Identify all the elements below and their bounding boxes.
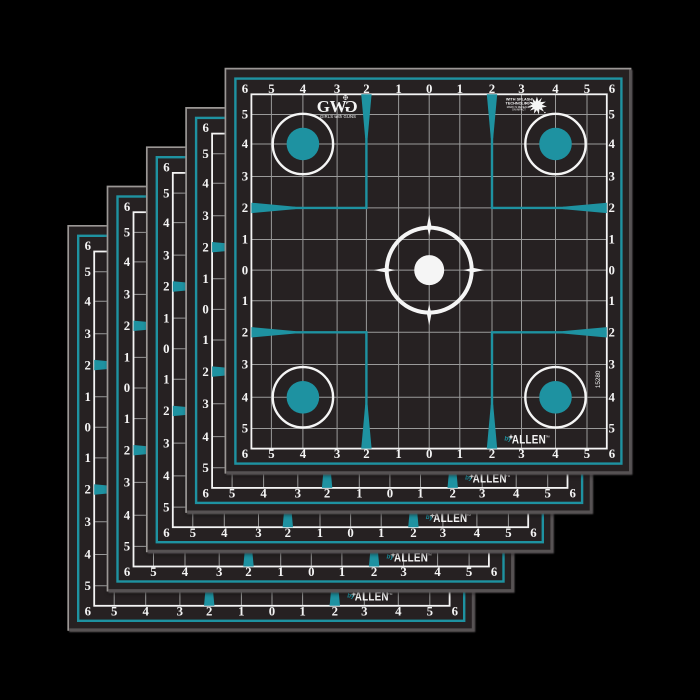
svg-text:3: 3 [124, 288, 130, 302]
svg-text:6: 6 [491, 565, 498, 579]
svg-text:5: 5 [608, 108, 614, 122]
svg-text:4: 4 [84, 548, 91, 562]
svg-text:0: 0 [163, 342, 169, 356]
svg-text:6: 6 [609, 447, 616, 461]
svg-text:5: 5 [427, 604, 433, 618]
svg-text:1: 1 [242, 233, 248, 247]
svg-text:1: 1 [457, 82, 463, 96]
svg-text:5: 5 [163, 500, 169, 514]
svg-text:6: 6 [242, 82, 249, 96]
svg-text:4: 4 [608, 137, 615, 151]
svg-text:2: 2 [163, 280, 169, 294]
svg-text:3: 3 [518, 447, 524, 461]
svg-text:0: 0 [347, 526, 353, 540]
svg-text:4: 4 [182, 565, 189, 579]
svg-text:5: 5 [111, 604, 117, 618]
svg-text:2: 2 [489, 447, 495, 461]
svg-text:0: 0 [387, 487, 393, 501]
svg-text:2: 2 [324, 487, 330, 501]
svg-text:6: 6 [242, 447, 249, 461]
svg-text:0: 0 [242, 263, 248, 277]
svg-text:1: 1 [356, 487, 362, 501]
svg-text:6: 6 [85, 239, 92, 253]
svg-text:5: 5 [505, 526, 511, 540]
svg-text:1: 1 [417, 487, 423, 501]
svg-text:2: 2 [84, 358, 90, 372]
svg-text:5: 5 [229, 487, 235, 501]
svg-text:2: 2 [163, 404, 169, 418]
svg-text:4: 4 [513, 487, 520, 501]
svg-text:3: 3 [163, 248, 169, 262]
svg-text:3: 3 [608, 170, 614, 184]
svg-text:2: 2 [242, 201, 248, 215]
svg-text:1: 1 [339, 565, 345, 579]
svg-text:0: 0 [269, 604, 275, 618]
svg-text:G: G [344, 97, 357, 116]
svg-text:4: 4 [202, 177, 209, 191]
svg-text:4: 4 [242, 391, 249, 405]
svg-text:GW: GW [317, 97, 347, 116]
svg-text:1: 1 [299, 604, 305, 618]
svg-text:3: 3 [295, 487, 301, 501]
svg-text:5: 5 [242, 108, 248, 122]
svg-text:4: 4 [300, 447, 307, 461]
svg-text:2: 2 [489, 82, 495, 96]
svg-text:TM: TM [545, 435, 550, 439]
svg-text:3: 3 [177, 604, 183, 618]
svg-text:4: 4 [84, 294, 91, 308]
svg-text:15280: 15280 [595, 370, 602, 388]
svg-text:1: 1 [395, 82, 401, 96]
svg-text:4: 4 [142, 604, 149, 618]
svg-text:5: 5 [584, 82, 590, 96]
svg-text:3: 3 [334, 447, 340, 461]
svg-text:5: 5 [190, 526, 196, 540]
svg-text:3: 3 [440, 526, 446, 540]
svg-text:1: 1 [124, 351, 130, 365]
svg-text:5: 5 [584, 447, 590, 461]
svg-text:0: 0 [426, 447, 432, 461]
svg-text:3: 3 [202, 209, 208, 223]
svg-text:2: 2 [206, 604, 212, 618]
svg-text:5: 5 [163, 186, 169, 200]
svg-text:TECHNOLOGY: TECHNOLOGY [506, 101, 533, 105]
svg-text:4: 4 [202, 430, 209, 444]
svg-text:1: 1 [163, 311, 169, 325]
svg-text:1: 1 [242, 294, 248, 308]
svg-text:3: 3 [242, 170, 248, 184]
svg-text:6: 6 [202, 121, 209, 135]
svg-text:2: 2 [285, 526, 291, 540]
svg-text:6: 6 [452, 604, 459, 618]
svg-text:1: 1 [238, 604, 244, 618]
svg-text:3: 3 [242, 358, 248, 372]
svg-text:1: 1 [395, 447, 401, 461]
svg-text:3: 3 [334, 82, 340, 96]
svg-text:1: 1 [378, 526, 384, 540]
svg-text:3: 3 [518, 82, 524, 96]
svg-text:2: 2 [608, 201, 614, 215]
svg-text:3: 3 [255, 526, 261, 540]
svg-text:5: 5 [608, 422, 614, 436]
svg-text:1: 1 [202, 272, 208, 286]
svg-text:2: 2 [202, 365, 208, 379]
svg-text:2: 2 [363, 82, 369, 96]
svg-text:4: 4 [434, 565, 441, 579]
svg-text:5: 5 [84, 265, 90, 279]
svg-text:2: 2 [202, 240, 208, 254]
svg-text:4: 4 [124, 255, 131, 269]
svg-text:1: 1 [457, 447, 463, 461]
svg-text:3: 3 [216, 565, 222, 579]
svg-text:0: 0 [426, 82, 432, 96]
svg-text:4: 4 [300, 82, 307, 96]
svg-text:4: 4 [552, 82, 559, 96]
svg-text:3: 3 [479, 487, 485, 501]
svg-text:1: 1 [608, 233, 614, 247]
svg-text:2: 2 [449, 487, 455, 501]
svg-text:5: 5 [466, 565, 472, 579]
svg-text:4: 4 [608, 391, 615, 405]
svg-text:0: 0 [308, 565, 314, 579]
svg-text:3: 3 [163, 436, 169, 450]
svg-text:1: 1 [277, 565, 283, 579]
svg-text:5: 5 [84, 579, 90, 593]
svg-text:1: 1 [84, 390, 90, 404]
svg-text:6: 6 [85, 604, 92, 618]
svg-text:3: 3 [202, 397, 208, 411]
svg-text:6: 6 [163, 161, 170, 175]
svg-text:6: 6 [124, 200, 131, 214]
svg-text:0: 0 [608, 263, 614, 277]
svg-text:5: 5 [268, 447, 274, 461]
svg-text:4: 4 [395, 604, 402, 618]
svg-text:GIRLS with GUNS: GIRLS with GUNS [320, 114, 356, 119]
svg-text:1: 1 [163, 373, 169, 387]
svg-text:2: 2 [332, 604, 338, 618]
svg-text:6: 6 [609, 82, 616, 96]
svg-text:2: 2 [124, 319, 130, 333]
svg-text:2: 2 [245, 565, 251, 579]
svg-text:1: 1 [124, 412, 130, 426]
svg-text:0: 0 [202, 303, 208, 317]
svg-text:4: 4 [124, 508, 131, 522]
svg-text:2: 2 [363, 447, 369, 461]
svg-text:2: 2 [84, 483, 90, 497]
svg-text:0: 0 [124, 381, 130, 395]
svg-text:ON IMPACT: ON IMPACT [512, 109, 526, 112]
svg-text:2: 2 [410, 526, 416, 540]
svg-text:2: 2 [371, 565, 377, 579]
svg-text:3: 3 [84, 515, 90, 529]
svg-text:3: 3 [84, 327, 90, 341]
svg-text:4: 4 [163, 216, 170, 230]
svg-text:5: 5 [124, 226, 130, 240]
svg-text:1: 1 [317, 526, 323, 540]
svg-text:3: 3 [608, 358, 614, 372]
svg-text:4: 4 [163, 469, 170, 483]
svg-text:5: 5 [124, 540, 130, 554]
svg-text:5: 5 [202, 147, 208, 161]
svg-text:1: 1 [608, 294, 614, 308]
svg-text:3: 3 [400, 565, 406, 579]
svg-text:6: 6 [124, 565, 131, 579]
svg-text:5: 5 [150, 565, 156, 579]
svg-text:0: 0 [84, 421, 90, 435]
svg-text:5: 5 [202, 461, 208, 475]
svg-text:6: 6 [202, 487, 209, 501]
svg-text:2: 2 [124, 443, 130, 457]
svg-text:5: 5 [242, 422, 248, 436]
svg-text:3: 3 [124, 476, 130, 490]
svg-text:5: 5 [268, 82, 274, 96]
svg-text:ALLEN: ALLEN [512, 434, 546, 447]
svg-text:4: 4 [242, 137, 249, 151]
svg-text:4: 4 [221, 526, 228, 540]
svg-text:4: 4 [474, 526, 481, 540]
svg-text:4: 4 [260, 487, 267, 501]
svg-text:2: 2 [608, 326, 614, 340]
svg-text:5: 5 [544, 487, 550, 501]
svg-text:6: 6 [163, 526, 170, 540]
svg-text:2: 2 [242, 326, 248, 340]
svg-text:6: 6 [569, 487, 576, 501]
svg-text:4: 4 [552, 447, 559, 461]
svg-text:1: 1 [84, 451, 90, 465]
svg-text:6: 6 [530, 526, 537, 540]
svg-text:3: 3 [361, 604, 367, 618]
svg-text:1: 1 [202, 333, 208, 347]
